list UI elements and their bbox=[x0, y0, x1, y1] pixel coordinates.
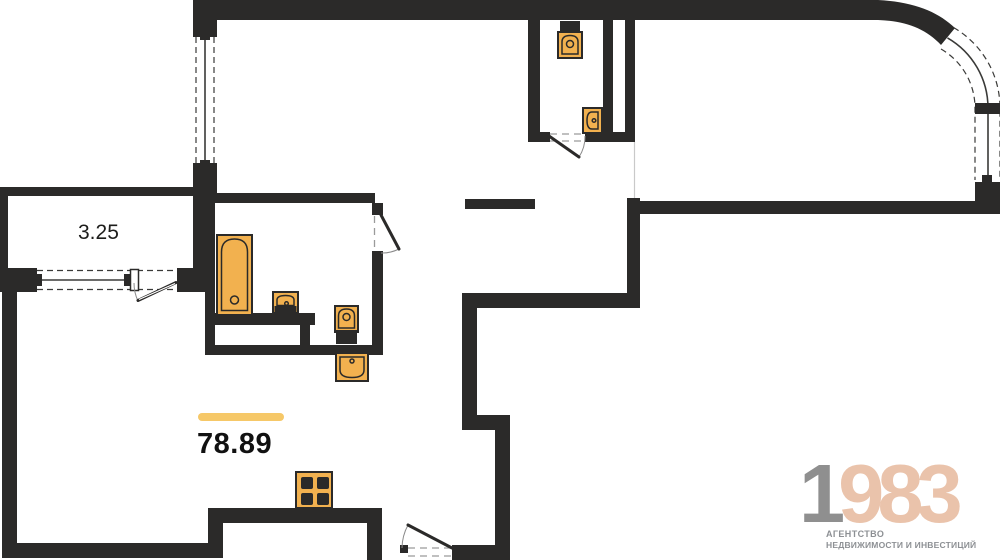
wall-segment bbox=[528, 132, 550, 142]
wall-segment bbox=[300, 315, 310, 353]
brand-logo: 1983 АГЕНТСТВО НЕДВИЖИМОСТИ И ИНВЕСТИЦИЙ bbox=[799, 452, 999, 535]
fixtures bbox=[217, 21, 602, 508]
wall-sink-icon bbox=[583, 108, 602, 133]
wall-segment bbox=[205, 0, 878, 20]
wall-segment bbox=[0, 268, 37, 292]
balcony-wall-left bbox=[0, 196, 8, 272]
wall-segment bbox=[372, 203, 383, 215]
curved-corner-window bbox=[941, 28, 1000, 184]
entry-door bbox=[402, 525, 452, 556]
toilet-icon bbox=[335, 306, 358, 344]
balcony-window bbox=[33, 270, 177, 291]
wc-wall-left bbox=[528, 20, 540, 142]
wall-segment bbox=[637, 201, 1000, 214]
wall-segment bbox=[367, 508, 382, 560]
windows bbox=[33, 28, 1000, 291]
accent-bar bbox=[198, 413, 284, 421]
duct-wall bbox=[625, 20, 635, 142]
bathroom-wall-top bbox=[205, 193, 375, 203]
wc-door bbox=[549, 134, 585, 157]
wall-segment bbox=[193, 0, 217, 37]
wall-segment bbox=[193, 187, 207, 292]
wall-segment bbox=[205, 193, 215, 355]
total-area-label: 78.89 bbox=[197, 428, 272, 461]
wall-left-outer bbox=[2, 292, 17, 543]
bathtub-icon bbox=[217, 235, 252, 315]
balcony-door bbox=[134, 283, 176, 302]
bathroom-sink-icon bbox=[273, 292, 298, 313]
floor-plan-page: 3.25 78.89 1983 АГЕНТСТВО НЕДВИЖИМОСТИ И… bbox=[0, 0, 1000, 560]
logo-digits-accent: 983 bbox=[838, 447, 955, 540]
wall-segment bbox=[462, 293, 477, 430]
wall-segment bbox=[495, 430, 510, 560]
toilet-icon bbox=[558, 21, 582, 58]
wall-segment bbox=[975, 182, 1000, 214]
balcony-area-label: 3.25 bbox=[78, 221, 119, 245]
wall-segment bbox=[627, 198, 640, 308]
logo-tagline-line2: НЕДВИЖИМОСТИ И ИНВЕСТИЦИЙ bbox=[826, 540, 976, 550]
kitchen-partition-stub bbox=[465, 199, 535, 209]
washbasin-icon bbox=[336, 353, 368, 381]
wc-wall-right bbox=[603, 20, 613, 133]
logo-tagline-line1: АГЕНТСТВО bbox=[826, 529, 884, 539]
balcony-wall-top bbox=[0, 187, 207, 196]
wall-segment bbox=[177, 268, 193, 292]
stove-icon bbox=[296, 472, 332, 508]
logo-digit-gray: 1 bbox=[799, 447, 838, 540]
wall-segment bbox=[462, 293, 640, 308]
wall-bottom-outer bbox=[2, 543, 223, 558]
wall-segment bbox=[208, 508, 223, 558]
side-window bbox=[196, 33, 214, 167]
bathroom-door bbox=[375, 215, 400, 253]
wall-segment bbox=[372, 251, 383, 355]
entry-door-jamb bbox=[400, 545, 408, 553]
logo-year: 1983 bbox=[799, 452, 999, 535]
window-mullion bbox=[975, 103, 1000, 114]
wall-segment bbox=[208, 508, 382, 523]
wall-curved-corner bbox=[878, 0, 955, 45]
